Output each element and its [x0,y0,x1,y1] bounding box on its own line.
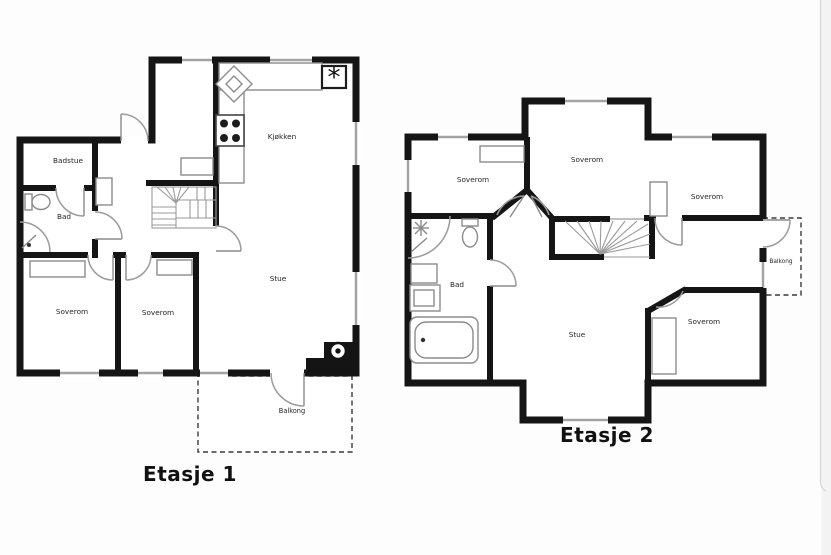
wardrobe-bedroom1 [30,261,85,277]
room-label-soverom1-f1: Soverom [56,307,88,316]
chimney-symbol: * [328,63,341,93]
page-edge-strip [822,0,831,555]
room-label-bad-f1: Bad [57,212,71,221]
wardrobe-bedroom2 [157,260,192,275]
room-label-bad-f2: Bad [450,280,464,289]
wardrobe-soverom-left [480,146,524,162]
room-label-stue-f2: Stue [569,330,586,339]
vanity-icon [410,264,440,311]
wardrobe-soverom-right [650,182,667,216]
bathtub-icon [410,317,478,363]
chimney-icon: * [322,63,346,93]
floor1-caption: Etasje 1 [143,462,237,486]
room-label-stue-f1: Stue [270,274,287,283]
toilet-icon [25,194,50,210]
hall-cabinet [181,158,213,175]
room-label-balkong-f1: Balkong [279,407,305,415]
room-label-soverom-top-f2: Soverom [571,155,603,164]
hall-closet [96,178,112,205]
floor2-balcony [763,218,801,295]
toilet2-icon [462,219,478,247]
stove-icon [216,115,244,146]
room-label-soverom-bottom-f2: Soverom [688,317,720,326]
room-label-kjokken: Kjøkken [268,132,297,141]
floor2-caption: Etasje 2 [560,423,654,447]
room-label-balkong-f2: Balkong [769,259,793,265]
floorplan-canvas: * Ba [0,0,831,555]
room-label-badstue: Badstue [53,156,83,165]
wardrobe-soverom-bottom [652,318,676,374]
room-label-soverom2-f1: Soverom [142,308,174,317]
floorplan-svg: * Ba [0,0,831,555]
floor2-plan: Soverom Soverom Soverom Bad Stue Soverom… [408,101,801,447]
floor2-interior [408,101,763,420]
floor1-plan: * Ba [17,60,356,486]
room-label-soverom-left-f2: Soverom [457,175,489,184]
room-label-soverom-right-f2: Soverom [691,192,723,201]
